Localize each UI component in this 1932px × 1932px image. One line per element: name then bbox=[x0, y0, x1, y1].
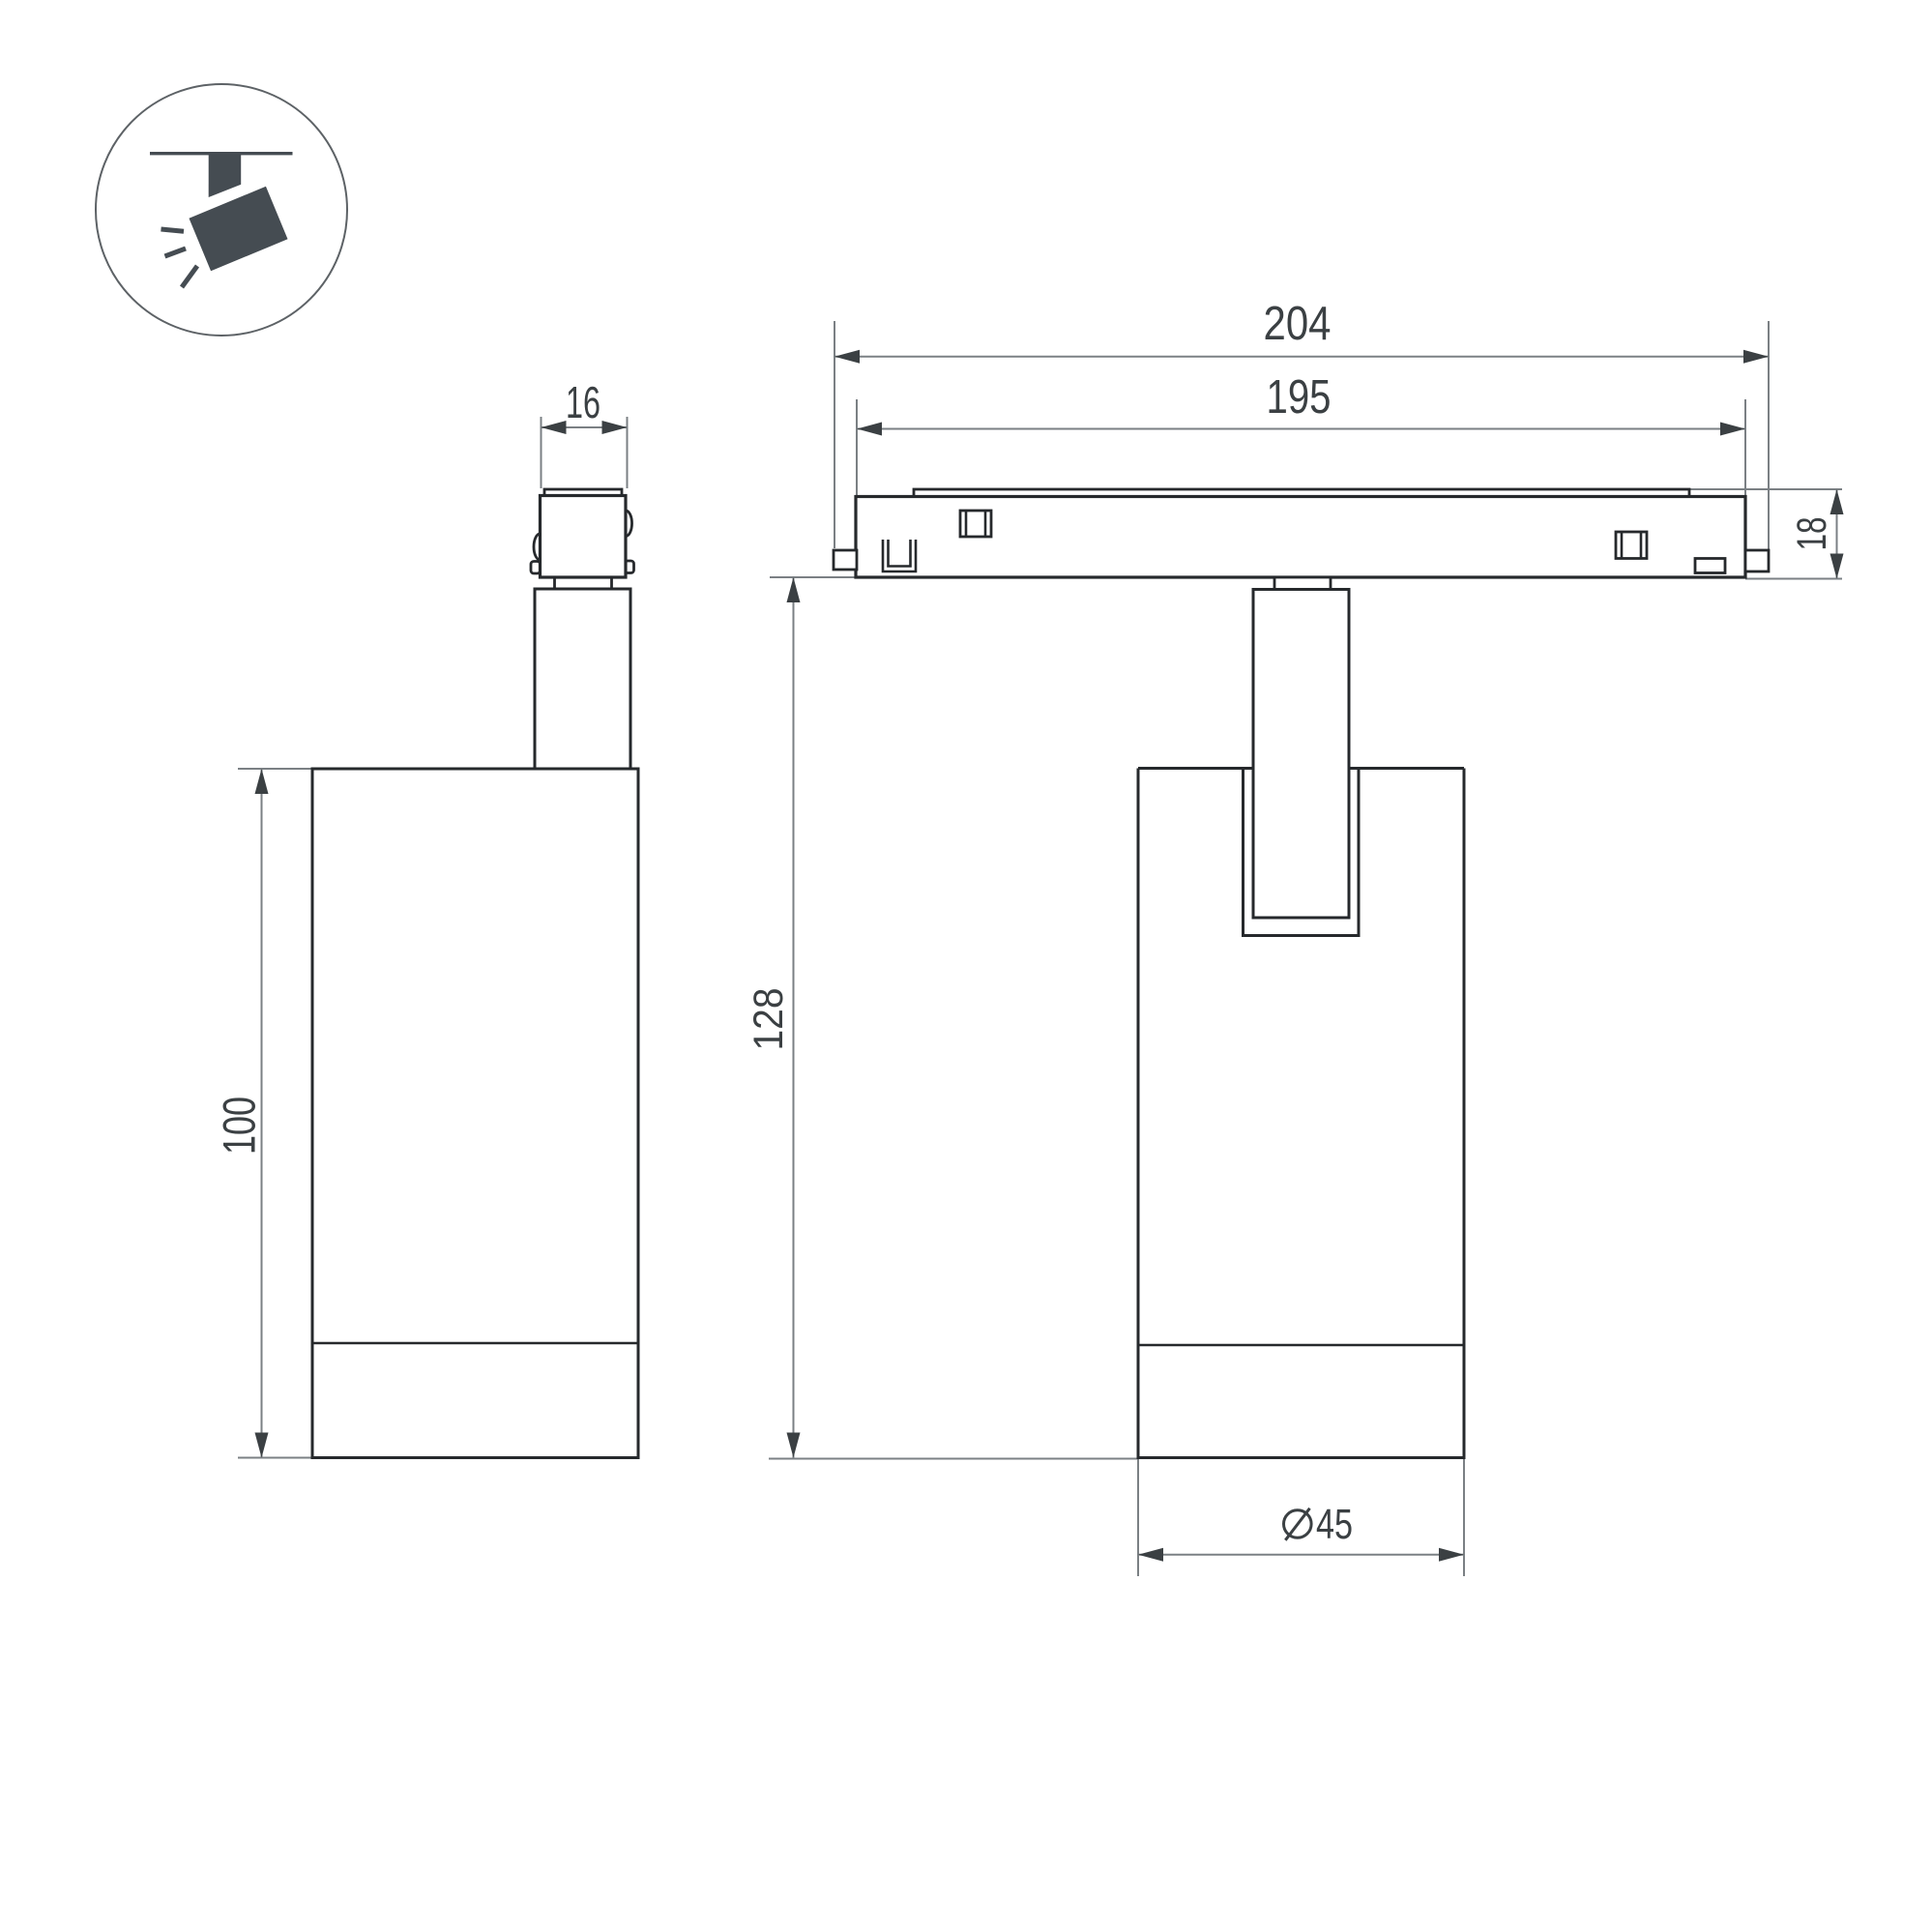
svg-text:204: 204 bbox=[1264, 298, 1332, 350]
svg-text:16: 16 bbox=[566, 377, 600, 427]
svg-text:100: 100 bbox=[213, 1097, 264, 1155]
svg-text:45: 45 bbox=[1316, 1501, 1353, 1548]
svg-text:195: 195 bbox=[1267, 371, 1332, 424]
svg-text:128: 128 bbox=[746, 988, 792, 1051]
svg-text:18: 18 bbox=[1789, 517, 1835, 551]
